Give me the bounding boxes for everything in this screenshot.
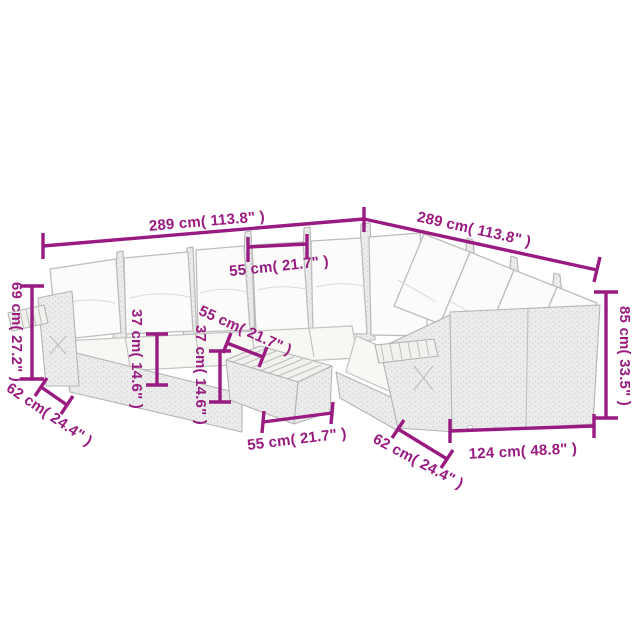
dimension-tick — [331, 402, 333, 424]
dimension-label: 37 cm( 14.6" ) — [128, 309, 145, 409]
product-diagram: 289 cm( 113.8" ) 289 cm( 113.8" ) 55 cm(… — [0, 0, 640, 640]
dimension-tick — [35, 378, 47, 396]
bench-foot — [467, 425, 472, 429]
dimension-label: 69 cm( 27.2" ) — [8, 282, 25, 382]
bench-back-face — [450, 305, 600, 432]
dimension-label: 37 cm( 14.6" ) — [192, 325, 209, 425]
dimension-arm-height-left: 69 cm( 27.2" ) — [8, 282, 44, 382]
dimension-tick — [61, 396, 73, 414]
dimension-label: 85 cm( 33.5" ) — [616, 306, 633, 406]
dimension-tick — [262, 411, 264, 433]
sofa-dimension-drawing: 289 cm( 113.8" ) 289 cm( 113.8" ) 55 cm(… — [0, 0, 640, 640]
dimension-label: 124 cm( 48.8" ) — [468, 440, 577, 463]
